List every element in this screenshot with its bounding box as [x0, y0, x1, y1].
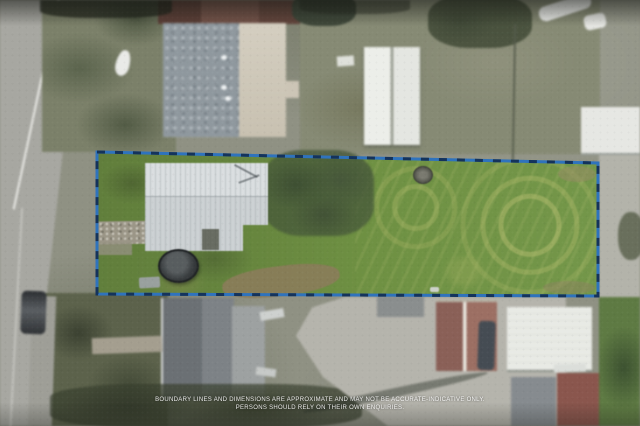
- aerial-property-photo: BOUNDARY LINES AND DIMENSIONS ARE APPROX…: [0, 0, 640, 426]
- boundary-line-dashes: [97, 152, 598, 296]
- boundary-overlay: [0, 0, 640, 426]
- boundary-line-solid: [97, 152, 598, 296]
- disclaimer-text: BOUNDARY LINES AND DIMENSIONS ARE APPROX…: [0, 396, 640, 412]
- disclaimer-line-2: PERSONS SHOULD RELY ON THEIR OWN ENQUIRI…: [0, 404, 640, 412]
- disclaimer-line-1: BOUNDARY LINES AND DIMENSIONS ARE APPROX…: [0, 396, 640, 404]
